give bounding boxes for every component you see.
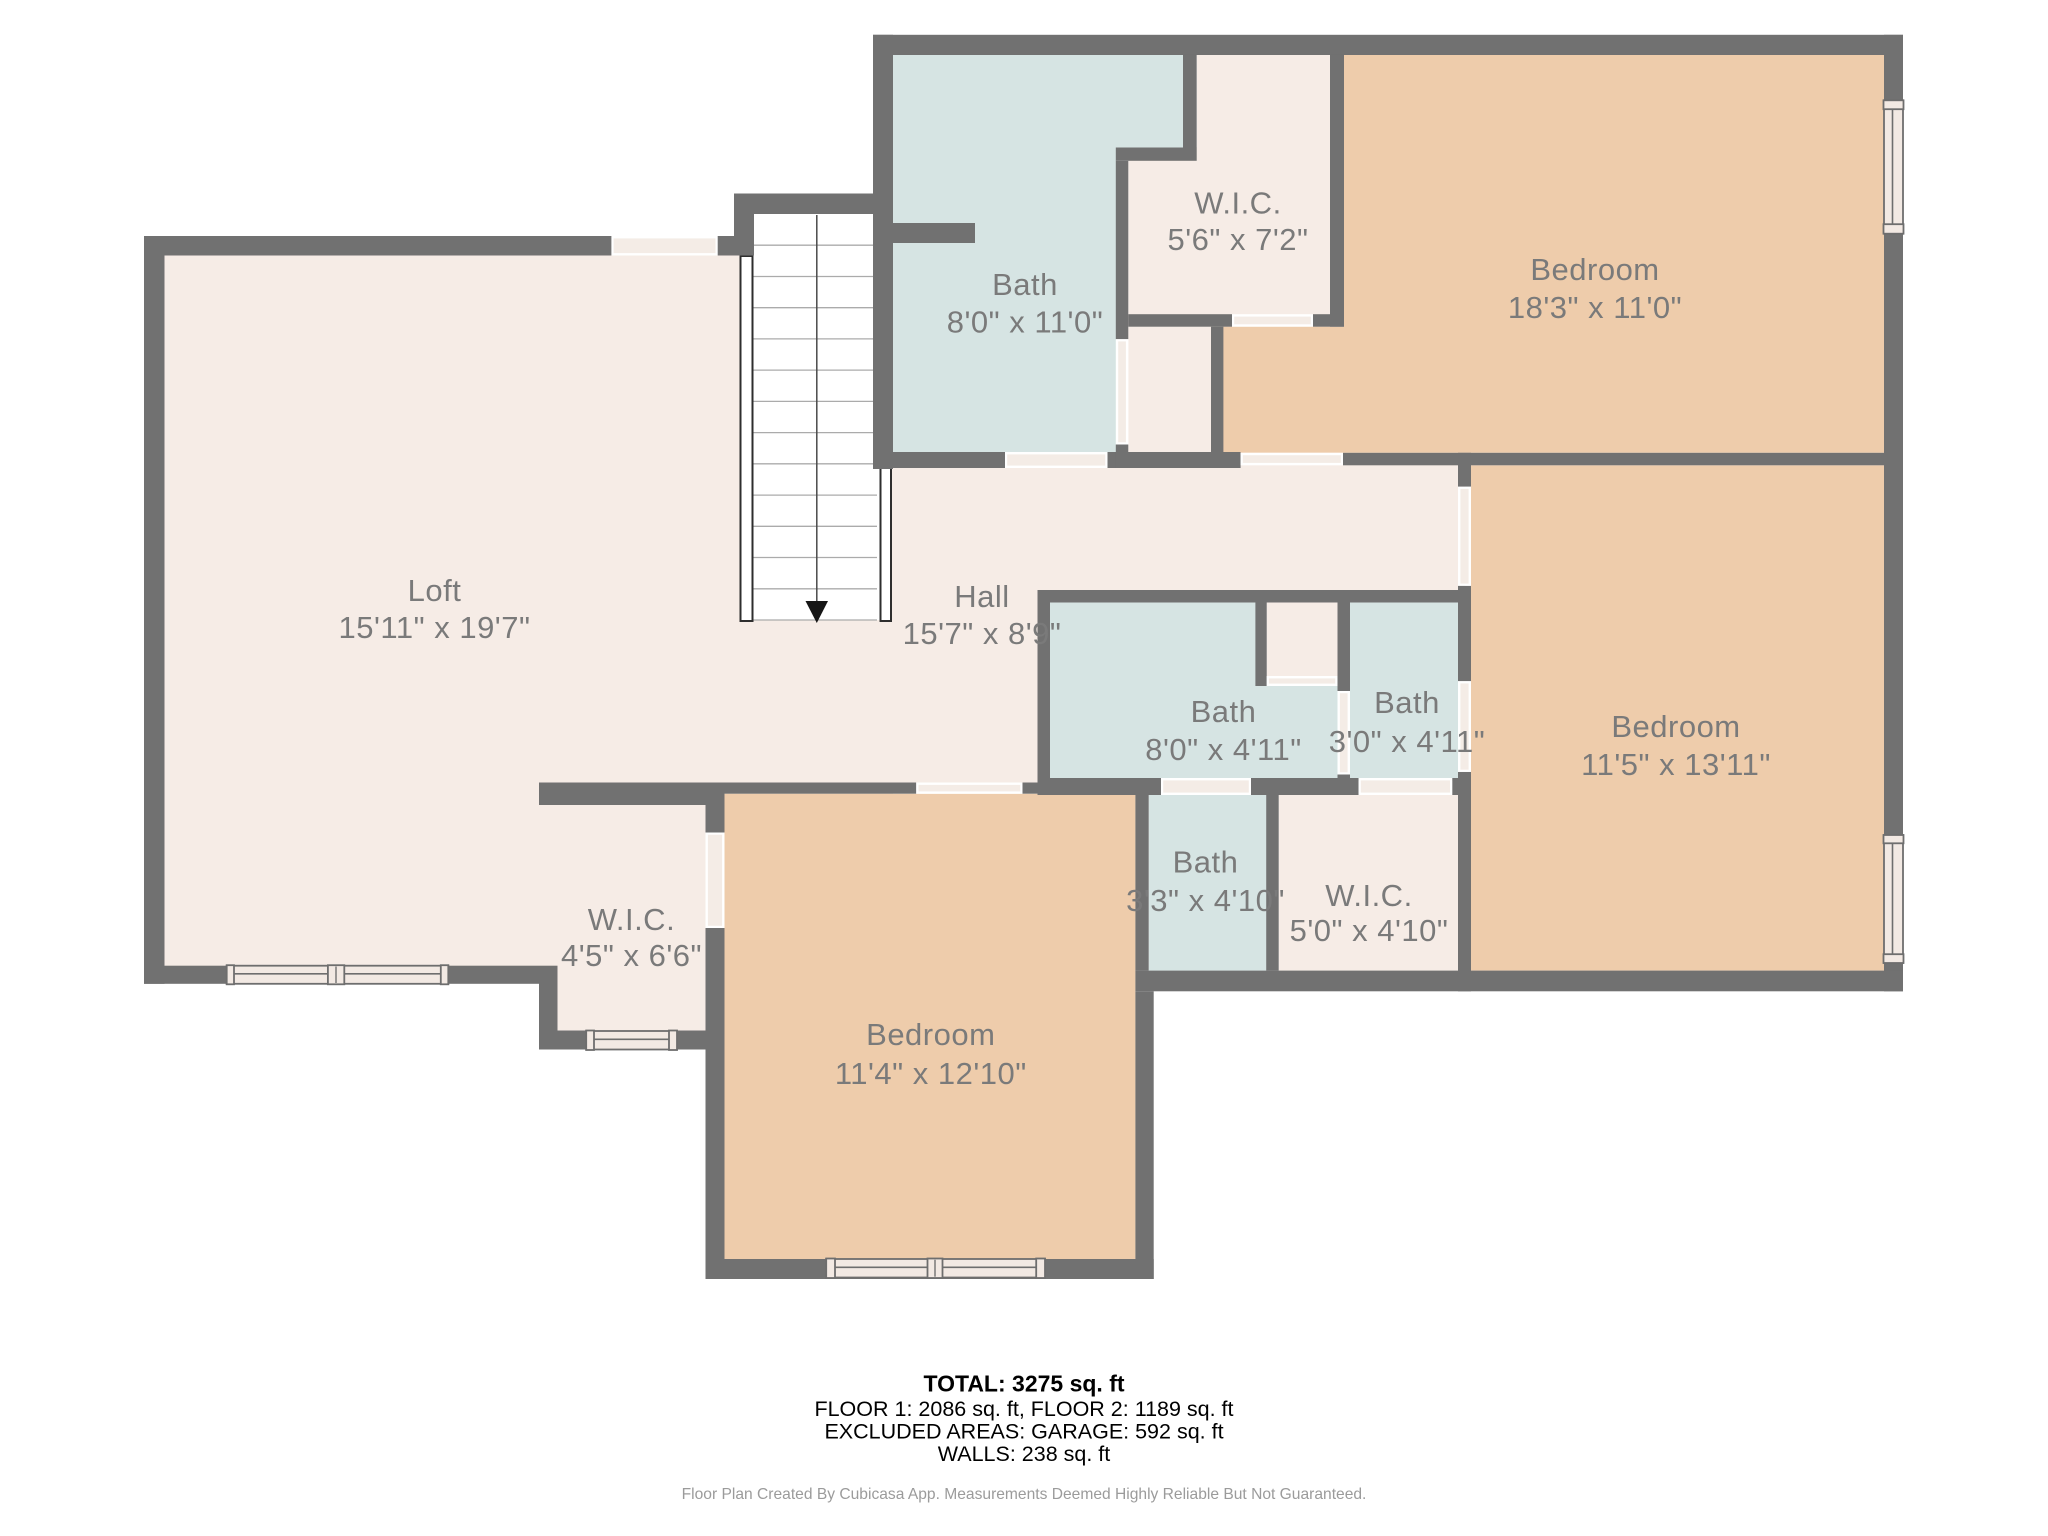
svg-text:Bath: Bath <box>1173 845 1239 880</box>
svg-text:5'0" x 4'10": 5'0" x 4'10" <box>1290 913 1449 948</box>
svg-text:Loft: Loft <box>408 573 462 608</box>
svg-text:Bath: Bath <box>992 267 1058 302</box>
svg-text:8'0" x 4'11": 8'0" x 4'11" <box>1145 732 1301 767</box>
svg-text:11'4" x 12'10": 11'4" x 12'10" <box>835 1056 1027 1091</box>
svg-text:3'0" x 4'11": 3'0" x 4'11" <box>1329 724 1485 759</box>
svg-text:11'5" x 13'11": 11'5" x 13'11" <box>1581 747 1771 782</box>
svg-text:W.I.C.: W.I.C. <box>1194 185 1281 220</box>
svg-text:WALLS: 238 sq. ft: WALLS: 238 sq. ft <box>938 1442 1111 1466</box>
svg-text:W.I.C.: W.I.C. <box>1325 878 1412 913</box>
svg-text:18'3" x 11'0": 18'3" x 11'0" <box>1508 290 1682 325</box>
svg-text:15'11" x 19'7": 15'11" x 19'7" <box>339 610 531 645</box>
svg-text:Bedroom: Bedroom <box>1611 709 1740 744</box>
svg-text:Bath: Bath <box>1374 685 1440 720</box>
svg-text:Bedroom: Bedroom <box>866 1017 995 1052</box>
svg-text:Bedroom: Bedroom <box>1530 252 1659 287</box>
svg-text:FLOOR 1: 2086 sq. ft, FLOOR 2:: FLOOR 1: 2086 sq. ft, FLOOR 2: 1189 sq. … <box>814 1397 1233 1421</box>
svg-text:EXCLUDED AREAS: GARAGE: 592 sq: EXCLUDED AREAS: GARAGE: 592 sq. ft <box>824 1420 1223 1444</box>
svg-text:Bath: Bath <box>1191 694 1257 729</box>
svg-text:W.I.C.: W.I.C. <box>588 902 675 937</box>
svg-text:TOTAL: 3275 sq. ft: TOTAL: 3275 sq. ft <box>923 1371 1124 1397</box>
svg-text:5'6" x 7'2": 5'6" x 7'2" <box>1167 222 1308 257</box>
svg-text:4'5" x 6'6": 4'5" x 6'6" <box>561 938 702 973</box>
svg-text:Hall: Hall <box>954 579 1009 614</box>
svg-text:3'3" x 4'10": 3'3" x 4'10" <box>1126 883 1285 918</box>
svg-text:15'7" x 8'9": 15'7" x 8'9" <box>903 616 1062 651</box>
svg-text:Floor Plan Created By Cubicasa: Floor Plan Created By Cubicasa App. Meas… <box>682 1486 1367 1503</box>
svg-text:8'0" x 11'0": 8'0" x 11'0" <box>947 305 1103 340</box>
